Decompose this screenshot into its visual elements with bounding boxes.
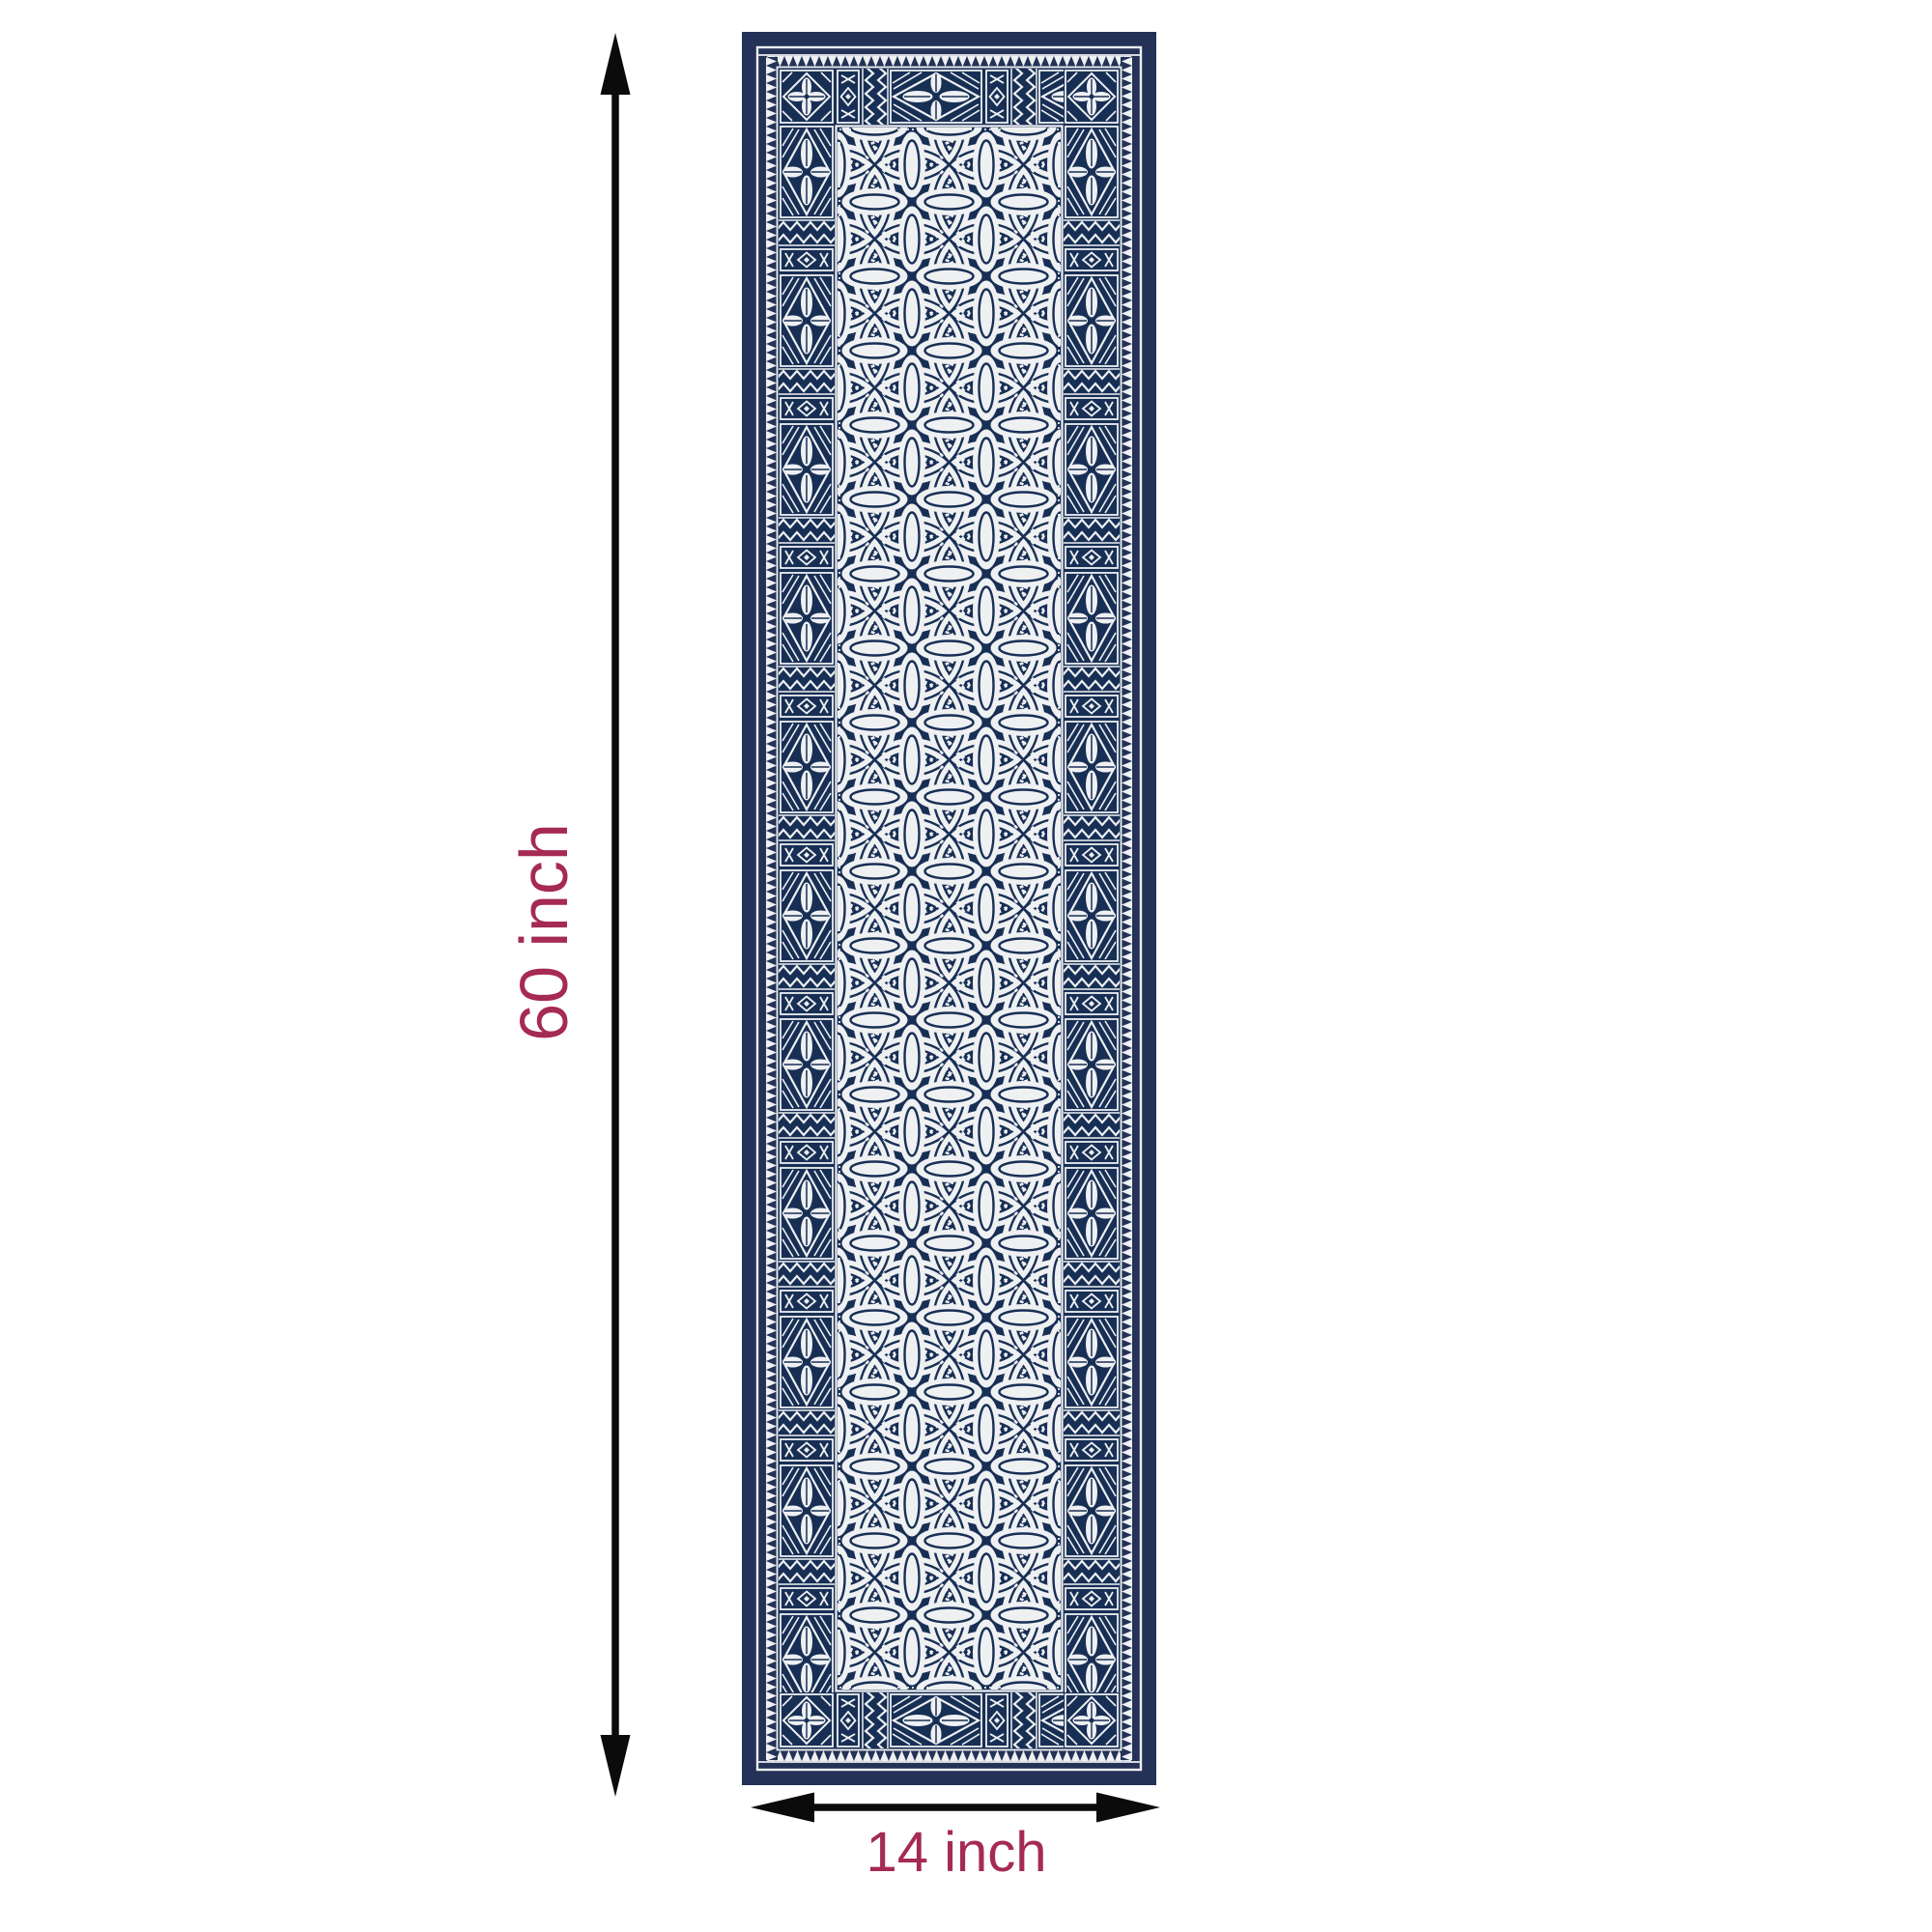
width-dimension-text: 14 inch [866,1825,1046,1881]
runner-image [742,32,1156,1785]
arrow-head-up-icon [601,33,631,95]
width-dimension-label: 14 inch [830,1818,1083,1888]
dimension-diagram: 60 inch 14 inch [0,0,1932,1932]
runner-field-pattern [838,128,1061,1690]
height-dimension-text: 60 inch [510,823,578,1041]
arrow-head-left-icon [751,1793,814,1823]
arrow-head-down-icon [601,1735,631,1797]
arrow-head-right-icon [1096,1793,1160,1823]
height-dimension-label: 60 inch [481,802,607,1063]
product-swatch-runner [742,32,1156,1785]
